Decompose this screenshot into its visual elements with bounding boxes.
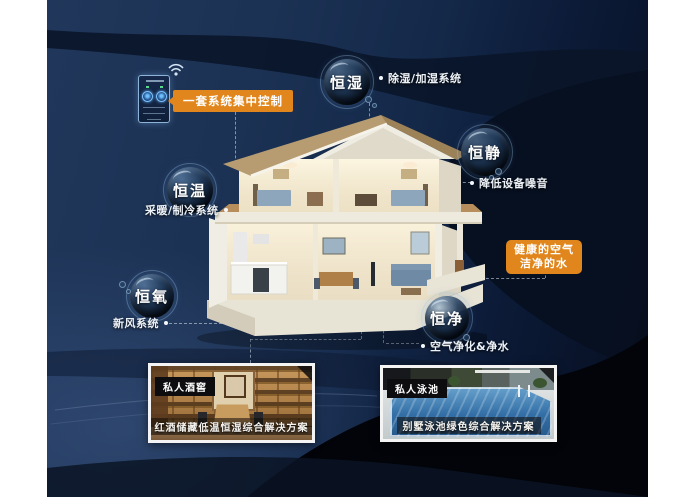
panel-readout-row: [143, 113, 165, 114]
bubble-label: 恒静: [468, 142, 502, 163]
panel-readout-row: [143, 107, 165, 108]
card-caption-wine: 红酒储藏低温恒湿综合解决方案: [149, 418, 315, 435]
central-control-callout: 一套系统集中控制: [173, 90, 293, 112]
note-bullet-dot: [379, 76, 383, 80]
bubble-deco-dot: [372, 103, 377, 108]
bubble-constant-humidity: 恒湿: [324, 59, 370, 105]
healthy-air-line2: 洁净的水: [506, 257, 582, 271]
card-caption-pool: 别墅泳池绿色综合解决方案: [397, 417, 541, 434]
note-bullet-dot: [224, 208, 228, 212]
bubble-constant-quiet: 恒静: [461, 128, 509, 176]
note-air-water-purification: 空气净化&净水: [421, 338, 509, 354]
bubble-label: 恒净: [430, 308, 464, 329]
panel-knob-left: [142, 91, 153, 102]
card-tag-pool: 私人泳池: [387, 379, 447, 398]
note-text: 除湿/加湿系统: [388, 70, 462, 86]
panel-led-right: [160, 86, 163, 88]
note-bullet-dot: [421, 344, 425, 348]
bubble-label: 恒氧: [135, 286, 169, 307]
bubble-deco-dot: [365, 96, 372, 103]
note-reduce-noise: 降低设备噪音: [470, 175, 548, 191]
panel-header-bar: [146, 80, 164, 82]
card-private-pool: 私人泳池 别墅泳池绿色综合解决方案: [380, 365, 557, 442]
pool-ladder: [518, 385, 530, 397]
note-text: 空气净化&净水: [430, 338, 509, 354]
pergola: [475, 370, 530, 373]
note-text: 采暖/制冷系统: [145, 202, 219, 218]
card-tag-wine: 私人酒窖: [155, 377, 215, 396]
bubble-deco-dot: [119, 281, 126, 288]
note-bullet-dot: [470, 181, 474, 185]
healthy-air-callout: 健康的空气 洁净的水: [506, 240, 582, 274]
poster-art-area: 一套系统集中控制 恒湿 恒静 恒温 恒氧 恒净 除湿/加湿系统: [47, 0, 648, 497]
note-dehumidify-system: 除湿/加湿系统: [379, 70, 462, 86]
corner-ribbon-icon: [539, 368, 554, 383]
central-control-label: 一套系统集中控制: [183, 93, 283, 109]
bubble-label: 恒湿: [330, 72, 364, 93]
panel-knob-right: [156, 91, 167, 102]
bubble-label: 恒温: [173, 180, 207, 201]
note-text: 降低设备噪音: [479, 175, 548, 191]
note-text: 新风系统: [113, 315, 159, 331]
house-lower-floor: [209, 218, 461, 308]
bubble-constant-clean: 恒净: [425, 296, 469, 340]
note-bullet-dot: [164, 321, 168, 325]
note-fresh-air-system: 新风系统: [113, 315, 168, 331]
smart-control-panel: [138, 75, 170, 123]
picture-frame: [224, 375, 246, 398]
bubble-deco-dot: [495, 168, 502, 175]
panel-led-left: [146, 86, 149, 88]
wifi-icon: [167, 62, 185, 77]
note-heating-cooling-system: 采暖/制冷系统: [145, 202, 228, 218]
bubble-constant-oxygen: 恒氧: [130, 274, 174, 318]
bubble-deco-dot: [126, 289, 131, 294]
plant: [448, 376, 460, 386]
poster-page: 一套系统集中控制 恒湿 恒静 恒温 恒氧 恒净 除湿/加湿系统: [0, 0, 700, 497]
panel-readout-row: [147, 119, 161, 120]
healthy-air-line1: 健康的空气: [506, 243, 582, 257]
card-wine-cellar: 私人酒窖 红酒储藏低温恒湿综合解决方案: [148, 363, 315, 443]
corner-ribbon-icon: [297, 366, 312, 381]
